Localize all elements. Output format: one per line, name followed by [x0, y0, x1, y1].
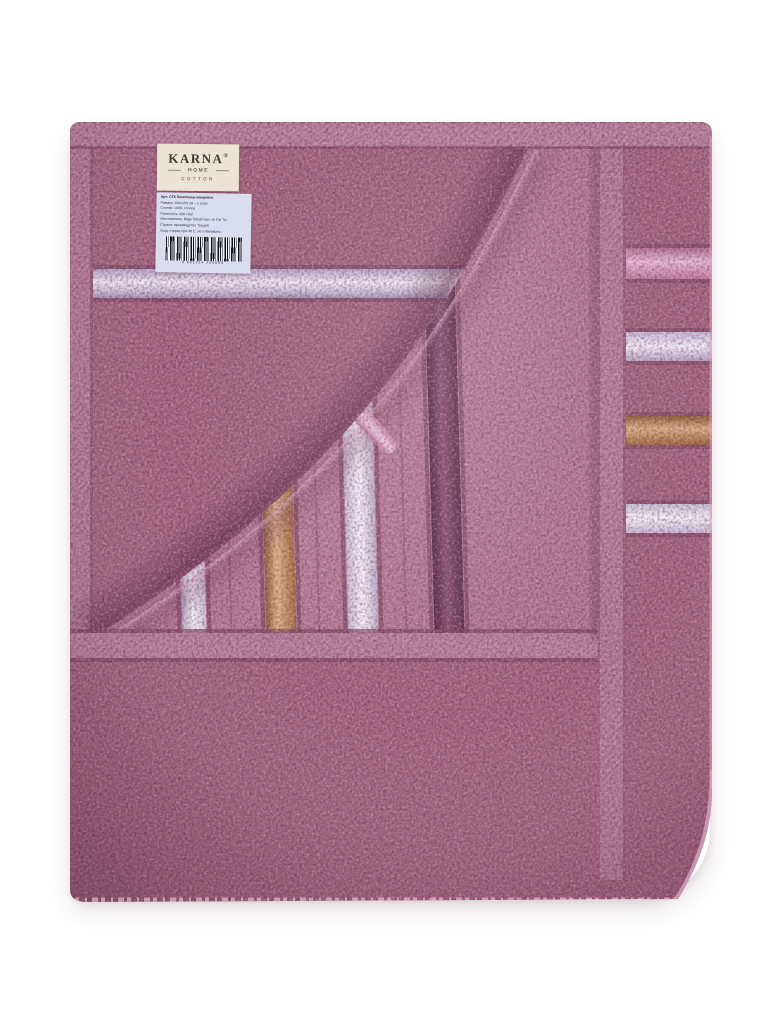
barcode [165, 236, 241, 261]
label-rule-left [167, 170, 180, 171]
info-line: Страна: производство Турция [160, 223, 204, 227]
label-rule-right [215, 170, 228, 171]
info-line: Изготовитель: Bilge Tekstil San. ve Dis … [160, 218, 204, 222]
info-line: Арт: СТК Полотенце махровое [161, 195, 205, 199]
brand-subtitle: HOME [188, 168, 209, 173]
product-photo-canvas: KARNA® HOME COTTON Арт: СТК Полотенце ма… [0, 0, 768, 1024]
towel-photo [0, 0, 768, 1024]
brand-subtitle-row: HOME [157, 167, 239, 175]
brand-wordmark: KARNA [168, 151, 223, 166]
care-info-label: Арт: СТК Полотенце махровое Размер: 100х… [155, 192, 251, 274]
brand-material-line: COTTON [171, 177, 225, 182]
barcode-digits: 8 681214 200098 [181, 261, 225, 265]
info-line: Уход: стирка при 40 С, не отбеливать [160, 229, 204, 233]
registered-trademark-icon: ® [223, 153, 228, 159]
info-line: Размер: 100х150 см – 1 штук [161, 201, 205, 205]
brand-label: KARNA® HOME COTTON [157, 144, 239, 192]
info-line: Плотность: 400 г/м2 [160, 212, 204, 216]
info-line: Состав: 100% хлопок [160, 206, 204, 210]
brand-name: KARNA® [157, 150, 239, 166]
